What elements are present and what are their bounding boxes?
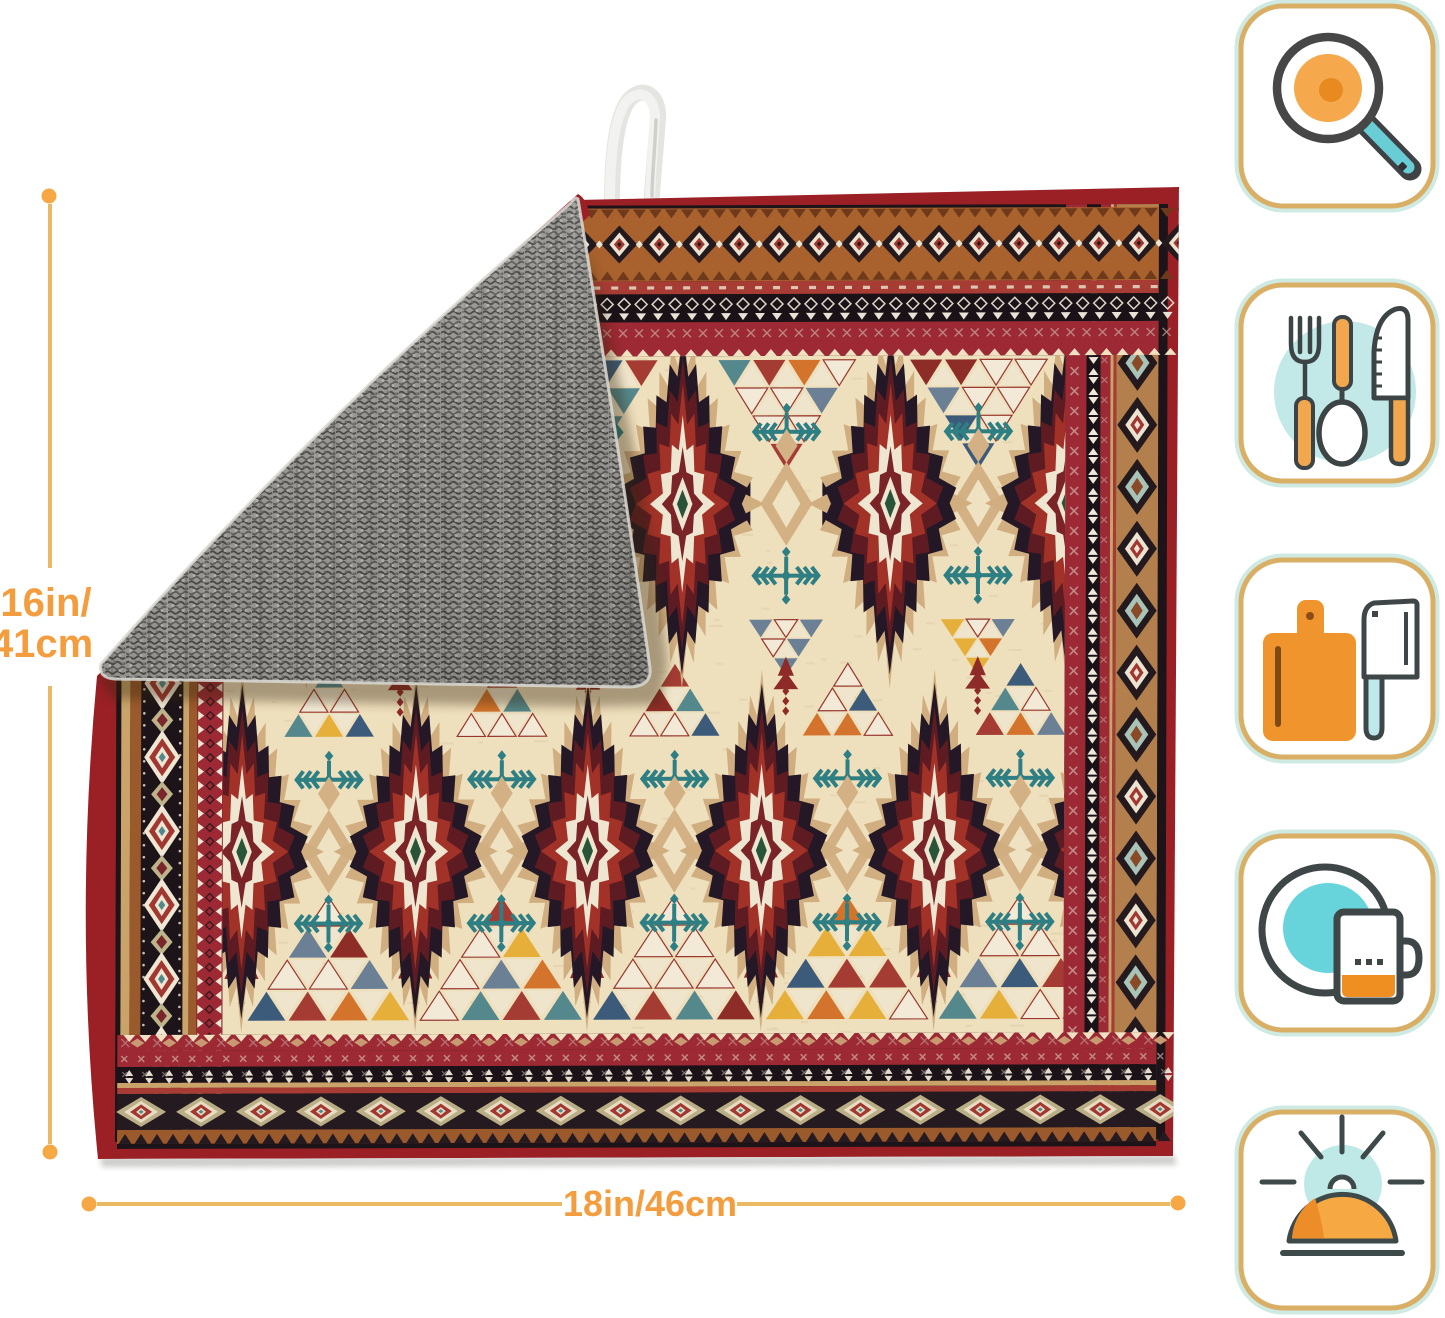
svg-text:16in/: 16in/ [0, 581, 91, 625]
svg-text:41cm: 41cm [0, 622, 93, 666]
svg-text:18in/46cm: 18in/46cm [563, 1183, 737, 1224]
